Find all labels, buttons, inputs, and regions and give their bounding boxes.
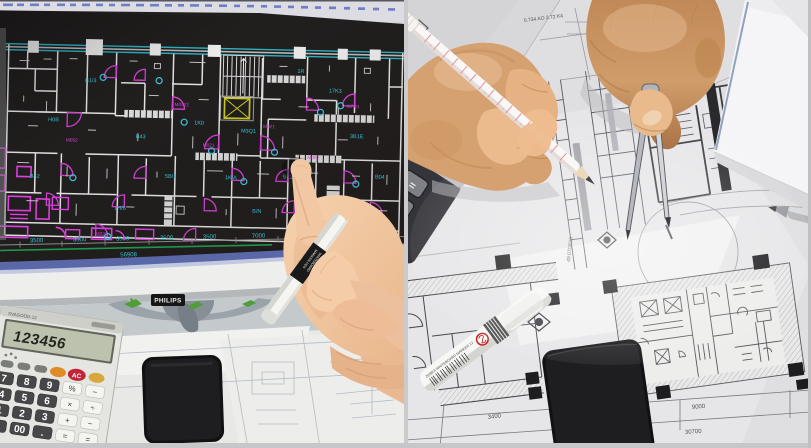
svg-text:9000: 9000 xyxy=(692,404,706,411)
svg-text:AC: AC xyxy=(71,372,82,380)
svg-text:00: 00 xyxy=(13,424,26,437)
svg-text:30700: 30700 xyxy=(685,429,703,436)
svg-text:PHILIPS: PHILIPS xyxy=(154,298,182,305)
svg-text:%: % xyxy=(68,384,76,394)
